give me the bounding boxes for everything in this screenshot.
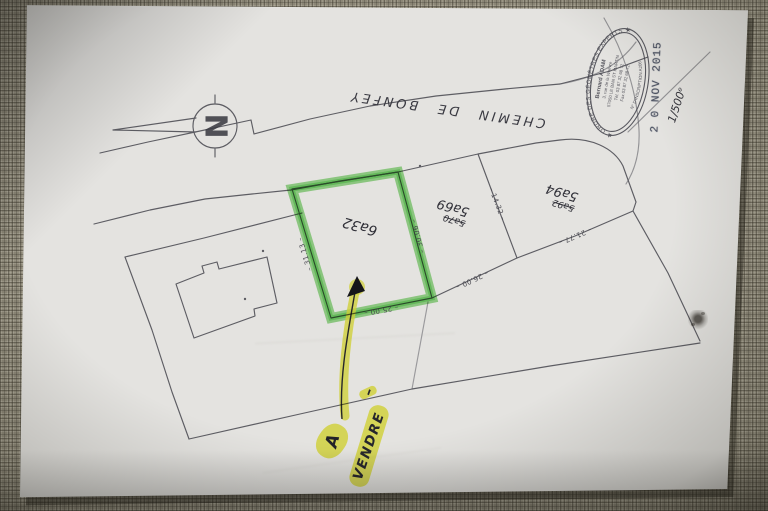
ink-smudge [688, 310, 708, 330]
photo-of-site-plan: N CHEMIN DE BONFEY 6a32 5a70 5a69 5a92 5… [0, 0, 768, 511]
green-highlight [292, 172, 432, 318]
stamp-star-left: ★ [605, 131, 614, 139]
stamp-star-right: ★ [624, 26, 633, 34]
